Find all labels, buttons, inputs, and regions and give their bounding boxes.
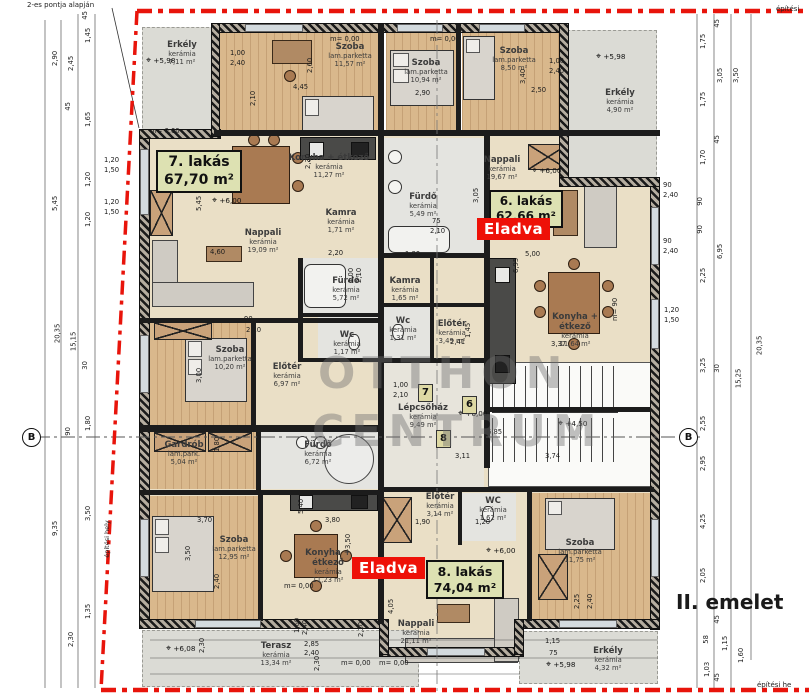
room-label-gardrob: Gardróblam.park.5,04 m² <box>154 440 214 466</box>
dimension: 2,40 <box>230 60 245 67</box>
window <box>246 25 302 31</box>
dimension: 90 <box>244 316 253 323</box>
dimension: 5,45 <box>196 196 203 211</box>
dimension: 2,10 <box>356 268 363 283</box>
dimension: 45 <box>65 102 72 111</box>
dimension: 2,30 <box>305 154 312 169</box>
dimension: 45 <box>714 19 721 28</box>
dimension: 45 <box>82 11 89 20</box>
dimension: 1,90 <box>415 519 430 526</box>
dimension: 45 <box>714 673 721 682</box>
wall-core-1 <box>384 253 484 258</box>
dimension: 1,00 <box>549 58 564 65</box>
room-label-nappali-apt6: Nappalikerámia19,67 m² <box>468 155 536 181</box>
dimension: 58 <box>703 635 710 644</box>
dimension: 90 <box>697 197 704 206</box>
outer-wall-jog-right <box>515 620 523 654</box>
dimension: 1,15 <box>545 638 560 645</box>
dimension: 1,35 <box>85 604 92 619</box>
level-mark: ⌖ +6,08 <box>166 644 195 654</box>
dimension: 90 <box>697 225 704 234</box>
dimension: 1,50 <box>104 209 119 216</box>
room-label-furdo-apt7: Fürdőkerámia5,72 m² <box>316 276 376 302</box>
watermark-otthon: OTTHON <box>318 352 570 396</box>
dimension: 2,55 <box>700 416 707 431</box>
floor-title: II. emelet <box>676 590 783 614</box>
dimension: 1,60 <box>738 648 745 663</box>
room-label-wc-apt6: Wckerámia1,31 m² <box>380 316 426 342</box>
dimension: 1,75 <box>700 34 707 49</box>
window <box>652 300 658 348</box>
dimension: 3,50 <box>85 506 92 521</box>
dimension: 20,35 <box>756 336 763 355</box>
dimension: 15,15 <box>70 332 77 351</box>
chair <box>568 258 580 270</box>
dimension: 1,75 <box>700 92 707 107</box>
dimension: 20,35 <box>54 324 61 343</box>
sofa-apt6 <box>584 186 617 248</box>
wall-apt7-mid <box>140 318 380 323</box>
room-label-konyha-apt7: Konyha + étkezőkerámia11,27 m² <box>288 153 370 179</box>
dimension: 5,45 <box>52 196 59 211</box>
apartment-badge-8: 8. lakás74,04 m² <box>426 560 504 599</box>
room-label-szoba1157: Szobalam.parketta11,57 m² <box>310 42 390 68</box>
chair <box>292 180 304 192</box>
dimension: 4,45 <box>293 84 308 91</box>
dimension: 30 <box>714 364 721 373</box>
wall-core-2 <box>384 303 484 307</box>
room-label-szoba1295: Szobalam.parketta12,95 m² <box>196 535 272 561</box>
wardrobe-x <box>154 322 212 340</box>
floor-plan-canvas: Erkélykerámia7,11 m² Szobalam.parketta11… <box>0 0 809 696</box>
floor-offset-label: m= 0,00 <box>430 36 460 43</box>
dimension: 5,00 <box>525 251 540 258</box>
dimension: 1,80 <box>214 437 221 452</box>
dimension: 1,20 <box>664 307 679 314</box>
room-label-szoba1094: Szobalam.parketta10,94 m² <box>390 58 462 84</box>
room-label-erkely-tr: Erkélykerámia4,90 m² <box>588 88 652 114</box>
dimension: 4,60 <box>210 249 225 256</box>
watermark-centrum: CENTRUM <box>312 410 604 454</box>
dimension: 45 <box>714 135 721 144</box>
dimension: 2,40 <box>587 594 594 609</box>
dimension: 3,00 <box>196 368 203 383</box>
floor-offset-label: m= 0,00 <box>284 583 314 590</box>
dimension: 3,50 <box>345 534 352 549</box>
floor-offset-label: m= 0,00 <box>150 128 180 135</box>
dimension: 9,35 <box>52 521 59 536</box>
dimension: 4,25 <box>700 514 707 529</box>
wall-apt7-furdo-left <box>298 258 303 362</box>
room-label-nappali-apt8: Nappalikerámia21,11 m² <box>384 619 448 645</box>
dimension: 2,95 <box>700 456 707 471</box>
dimension: 1,80 <box>85 416 92 431</box>
dimension: 1,20 <box>85 172 92 187</box>
dimension: 5,40 <box>298 499 305 514</box>
chair <box>602 280 614 292</box>
room-label-kamra-apt6: Kamrakerámia1,65 m² <box>380 276 430 302</box>
room-label-erkely-br: Erkélykerámia4,32 m² <box>576 646 640 672</box>
dimension: 45 <box>714 615 721 624</box>
room-label-eloter-apt8: Előtérkerámia3,14 m² <box>412 492 468 518</box>
room-label-terasz: Teraszkerámia13,34 m² <box>244 641 308 667</box>
dimension: 3,05 <box>473 188 480 203</box>
floor-offset-label: m= 0,00 <box>379 660 409 667</box>
dimension: 1,80 <box>405 251 420 258</box>
room-label-szoba850: Szobalam.parketta8,50 m² <box>478 46 550 72</box>
window <box>141 150 148 214</box>
window <box>196 621 260 627</box>
floor-offset-label: m= 90 <box>612 298 619 321</box>
dimension: 2,40 <box>302 620 309 635</box>
dimension: 2,30 <box>358 622 365 637</box>
wardrobe-x <box>382 497 412 543</box>
window <box>398 25 442 31</box>
window <box>652 208 658 264</box>
level-mark: ⌖ +5,98 <box>596 52 625 62</box>
sink <box>388 150 402 164</box>
level-mark: ⌖ +5,98 <box>146 56 175 66</box>
section-marker-b-right: B <box>679 428 698 447</box>
dimension: 1,15 <box>722 636 729 651</box>
outer-wall-tr-horiz <box>560 178 659 186</box>
room-label-konyha-apt6: Konyha + étkezőkerámia11,64 m² <box>536 312 614 348</box>
bed-szoba-1157 <box>302 96 374 134</box>
window <box>428 649 484 655</box>
section-marker-b-left: B <box>22 428 41 447</box>
room-label-furdo-apt6: Fürdőkerámia5,49 m² <box>394 192 452 218</box>
dimension: 2,85 <box>304 641 319 648</box>
dimension: 1,65 <box>85 112 92 127</box>
dimension: 90 <box>663 238 672 245</box>
dimension: 1,60 <box>294 618 301 633</box>
level-mark: ⌖ +6,00 <box>212 196 241 206</box>
room-label-kamra-apt7: Kamrakerámia1,71 m² <box>312 208 370 234</box>
dimension: 2,10 <box>250 91 257 106</box>
dimension: 2,50 <box>531 87 546 94</box>
level-mark: ⌖ +5,98 <box>546 660 575 670</box>
outer-wall-bottom-left <box>140 620 386 628</box>
dimension: 2,25 <box>700 268 707 283</box>
floor-offset-label: m= 0,00 <box>341 660 371 667</box>
dimension: 90 <box>663 182 672 189</box>
sold-badge-apt6: Eladva <box>477 218 550 240</box>
dimension: 2,30 <box>68 632 75 647</box>
window <box>141 520 148 576</box>
dimension: 1,03 <box>704 662 711 677</box>
dimension: 3,70 <box>197 517 212 524</box>
dimension: 2,25 <box>574 594 581 609</box>
level-mark: ⌖ +6,00 <box>532 166 561 176</box>
dimension: 3,50 <box>185 546 192 561</box>
dimension: 2,20 <box>328 250 343 257</box>
dimension: 2,40 <box>663 192 678 199</box>
dimension: 2,10 <box>246 327 261 334</box>
dimension: 2,90 <box>415 90 430 97</box>
floor-offset-label: m= 0,00 <box>330 36 360 43</box>
wardrobe-x <box>150 190 173 236</box>
dimension: 2,40 <box>214 574 221 589</box>
wall-apt7-furdo-wc <box>300 313 378 317</box>
dimension: 75 <box>549 650 558 657</box>
dimension: 1,20 <box>104 199 119 206</box>
dimension: 1,45 <box>85 28 92 43</box>
dimension: 3,40 <box>520 69 527 84</box>
chair <box>310 520 322 532</box>
apartment-badge-7: 7. lakás67,70 m² <box>156 150 242 193</box>
build-area-label-top-right: építési <box>776 5 799 13</box>
dimension: 2,30 <box>314 656 321 671</box>
window <box>480 25 524 31</box>
dimension: 2,45 <box>68 56 75 71</box>
dimension: 3,80 <box>325 517 340 524</box>
dimension: 6,95 <box>717 244 724 259</box>
dimension: 4,05 <box>388 599 395 614</box>
dimension: 90 <box>65 427 72 436</box>
room-label-szoba1175: Szobalam.parketta11,75 m² <box>544 538 616 564</box>
sofa-apt7-2 <box>152 282 254 307</box>
dimension: 1,45 <box>465 323 472 338</box>
window <box>141 336 148 392</box>
dimension: 30 <box>82 361 89 370</box>
dimension: 75 <box>432 218 441 225</box>
dimension: 2,90 <box>52 51 59 66</box>
build-area-label-left: építési hely <box>103 520 111 558</box>
wall-gardrob-furdo <box>256 428 261 490</box>
dimension: 2,41 <box>450 339 465 346</box>
note-top-left: 2-es pontja alapján <box>27 1 94 9</box>
dimension: 2,40 <box>663 248 678 255</box>
dimension: 1,50 <box>104 167 119 174</box>
dimension: 1,50 <box>664 317 679 324</box>
build-area-label-bottom-right: építési he <box>757 681 791 689</box>
dimension: 2,40 <box>549 68 564 75</box>
dimension: 3,50 <box>733 68 740 83</box>
dimension: 3,37 <box>551 341 566 348</box>
outer-wall-tr-vert <box>560 24 568 184</box>
dimension: 2,60 <box>307 58 314 73</box>
dimension: 1,70 <box>700 150 707 165</box>
wall-under-top-rooms <box>214 130 660 136</box>
dimension: 6,95 <box>513 258 520 273</box>
dimension: 1,20 <box>85 212 92 227</box>
dimension: 15,25 <box>735 369 742 388</box>
dimension: 2,05 <box>700 568 707 583</box>
dimension: 3,25 <box>700 358 707 373</box>
level-mark: ⌖ +6,00 <box>486 546 515 556</box>
window <box>560 621 616 627</box>
room-label-nappali-apt7: Nappalikerámia19,09 m² <box>230 228 296 254</box>
dimension: 2,10 <box>430 228 445 235</box>
sold-badge-apt8: Eladva <box>352 557 425 579</box>
dimension: 2,30 <box>199 638 206 653</box>
wall-nappali-szoba-apt8 <box>527 490 532 621</box>
dimension: 1,00 <box>348 268 355 283</box>
dimension: 1,20 <box>104 157 119 164</box>
desk-chair <box>284 70 296 82</box>
chair <box>534 280 546 292</box>
dimension: 1,20 <box>475 519 490 526</box>
dimension: 1,00 <box>230 50 245 57</box>
room-label-szoba1020: Szobalam.parketta10,20 m² <box>196 345 264 371</box>
dimension: 3,05 <box>717 68 724 83</box>
window <box>652 520 658 576</box>
